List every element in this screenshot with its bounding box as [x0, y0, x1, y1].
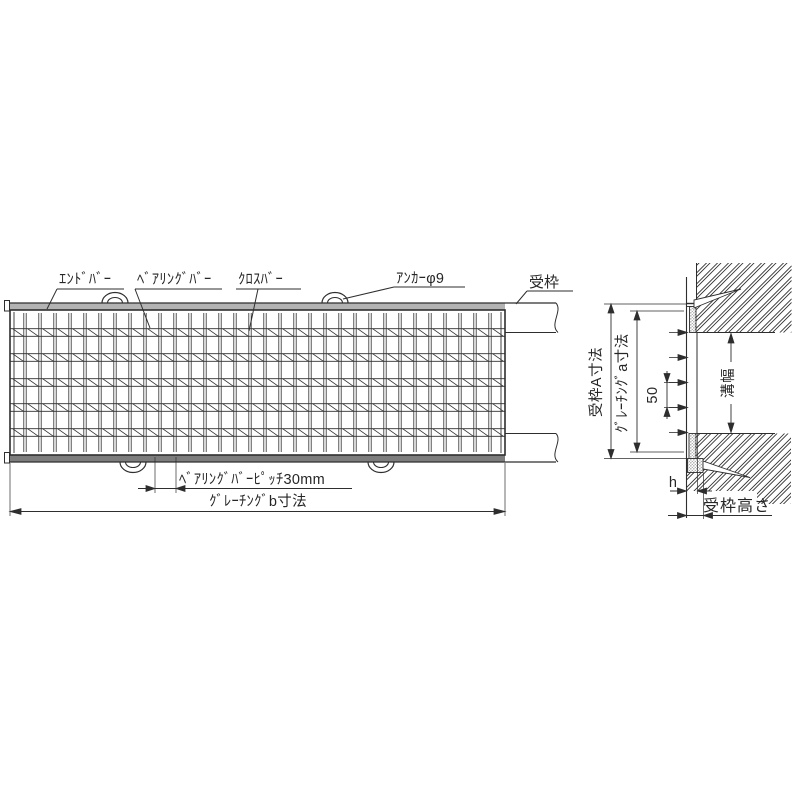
frame-height-dimension: 受枠高さ	[703, 497, 771, 515]
grating-b-dimension: ｸﾞﾚｰﾁﾝｸﾞb寸法	[209, 493, 307, 510]
anchor-label: ｱﾝｶｰφ9	[396, 271, 444, 287]
grating-height-h-dimension: h	[669, 475, 677, 491]
drawing-page: ｴﾝﾄﾞﾊﾞｰ ﾍﾞｱﾘﾝｸﾞﾊﾞｰ ｸﾛｽﾊﾞｰ ｱﾝｶｰφ9 受枠 ﾍﾞｱﾘ…	[0, 0, 800, 800]
crossbar-pitch-50-dimension: 50	[645, 386, 661, 403]
frame-label: 受枠	[529, 274, 559, 291]
end-bar-label: ｴﾝﾄﾞﾊﾞｰ	[59, 271, 111, 288]
plan-grating-grid	[10, 310, 505, 455]
bearing-bar-pitch-dimension: ﾍﾞｱﾘﾝｸﾞﾊﾞｰﾋﾟｯﾁ30mm	[179, 471, 325, 488]
section-labels: 受枠A寸法 ｸﾞﾚｰﾁﾝｸﾞa寸法 50 溝幅 h 受枠高さ	[588, 333, 771, 515]
groove-width-dimension: 溝幅	[720, 368, 737, 398]
bearing-bar-label: ﾍﾞｱﾘﾝｸﾞﾊﾞｰ	[137, 271, 212, 288]
grating-a-dimension: ｸﾞﾚｰﾁﾝｸﾞa寸法	[614, 333, 631, 433]
grating-technical-drawing: ｴﾝﾄﾞﾊﾞｰ ﾍﾞｱﾘﾝｸﾞﾊﾞｰ ｸﾛｽﾊﾞｰ ｱﾝｶｰφ9 受枠 ﾍﾞｱﾘ…	[0, 0, 800, 800]
cross-bar-label: ｸﾛｽﾊﾞｰ	[238, 271, 283, 288]
frame-a-dimension: 受枠A寸法	[588, 347, 605, 417]
